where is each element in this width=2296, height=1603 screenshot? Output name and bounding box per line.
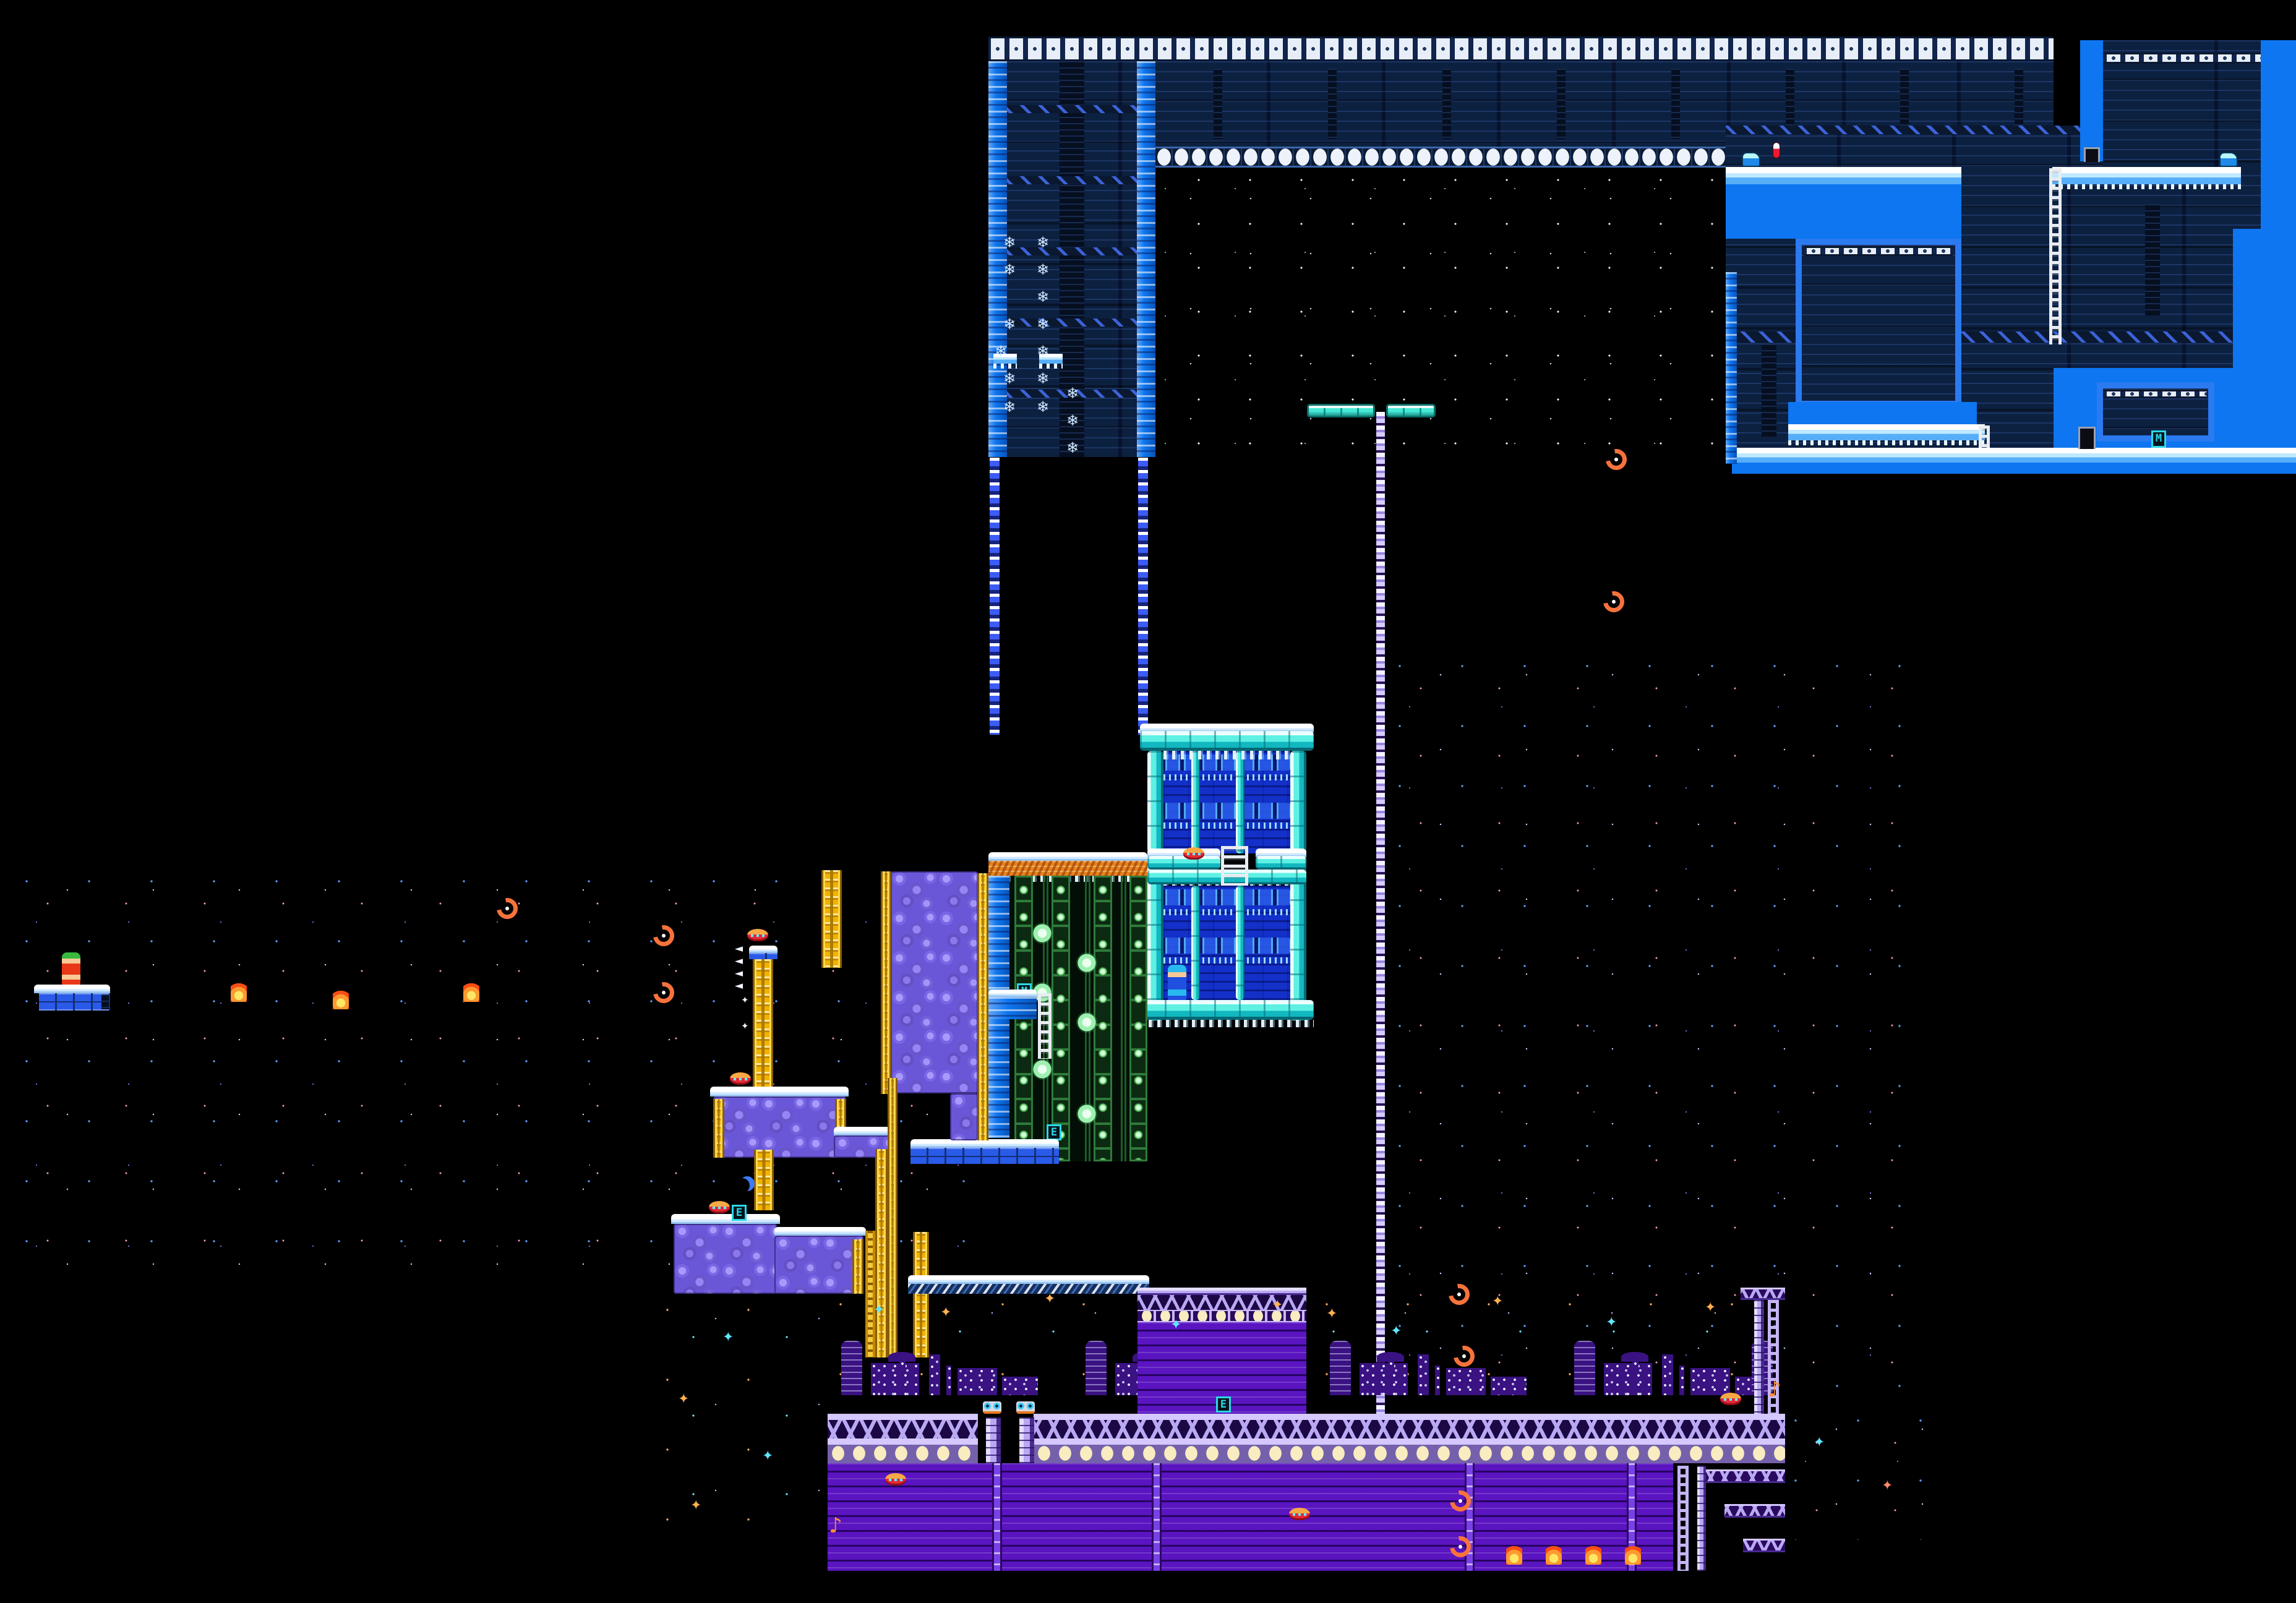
arrow-left-icon: ◄ [735,968,743,979]
upper-rock-platform [713,1096,846,1158]
skyline-stem [899,1361,906,1368]
start-platform [39,993,110,1011]
twinkle-icon: ✦ [762,1450,773,1463]
twinkle-icon: ✦ [1272,1299,1283,1312]
rock-wall-strip [950,1093,978,1140]
twinkle-icon: ✦ [1606,1316,1617,1330]
yellow-girder [835,1099,846,1130]
tower-edge-left [988,61,1007,457]
snowflake-icon: ❄ [1037,371,1049,386]
blue-ledge [910,1148,1059,1164]
arrow-left-icon: ◄ [735,981,743,991]
tower-edge-right [1137,61,1155,457]
fortress-wall-seam [992,1463,1002,1571]
level-map: MMEEE♪♪✦✦◄◄◄◄❄❄❄❄❄❄❄❄❄❄❄❄❄❄❄❄✦✦✦✦✦✦✦✦✦✦✦… [0,0,2296,1603]
twinkle-icon: ✦ [1170,1319,1181,1332]
rock-wall [891,871,978,1093]
right-structure-left-edge [1726,272,1737,464]
enemy-binoculars [1016,1401,1035,1414]
yellow-girder [977,873,988,1140]
fortress-corner-ladder [1677,1466,1689,1571]
starfield-left-of-fortress [656,1296,828,1537]
enemy-saucer [1289,1508,1310,1520]
item-crescent [740,1176,755,1191]
wall-speaker [1014,1525,1028,1546]
snowflake-icon: ❄ [1037,317,1049,331]
ne-shaft [2080,40,2103,161]
snowflake-icon: ❄ [1003,235,1016,250]
upper-ice-floor-right [2052,167,2241,184]
enemy-flame [333,990,349,1009]
yellow-girder [753,959,773,1096]
ice-arm-snow [988,990,1037,997]
gate-teeth [1163,957,1290,964]
dirt-ledge-snow [988,852,1147,861]
gate-mid-right [1256,856,1306,870]
item-capsule-e: E [1216,1396,1231,1413]
enemy-flame [463,982,479,1002]
tower-seam [1002,176,1142,184]
gate-frame-bottom [1140,1000,1314,1020]
wall-speaker [1168,1519,1182,1537]
machine-column [1052,876,1070,1161]
gap-under-room-a [1788,402,1977,425]
machine-ladder [1038,993,1052,1059]
twinkle-icon: ✦ [678,1393,689,1406]
snowflake-icon: ❄ [1037,235,1049,250]
yellow-girder [754,1150,774,1210]
item-sled [2219,152,2238,167]
gate-pipe [1236,751,1244,853]
wall-speaker [999,1525,1013,1546]
skyline-stem [1632,1361,1638,1368]
fortress-top-bar [1741,1288,1785,1300]
fortress-post [986,1417,1001,1463]
fortress-top-rail [1754,1300,1764,1414]
yellow-girder [713,1099,724,1158]
fortress-girder-left [828,1414,978,1463]
bottom-strip [1732,463,2296,474]
snowflake-icon: ❄ [1003,400,1016,414]
character-megaman [1168,965,1186,1000]
twinkle-icon: ✦ [1814,1436,1825,1450]
machine-rail [1124,876,1126,1161]
enemy-flame [1546,1545,1562,1565]
snowflake-icon: ❄ [1003,317,1016,331]
lower-rock-ext-snow [774,1227,866,1236]
snowflake-icon: ❄ [1037,262,1049,277]
lower-rock-platform-snow [671,1214,780,1224]
gate-plates [1163,803,1290,819]
twinkle-icon: ✦ [1044,1293,1055,1306]
skyline-block [1690,1368,1730,1395]
sparkle-icon: ✦ [741,996,749,1005]
fortress-step [1743,1539,1785,1552]
right-structure-ladder-upper [2049,168,2062,344]
skyline-tower [1330,1341,1351,1395]
long-ice-ledge [908,1284,1149,1294]
gate-icicles [1163,751,1290,759]
slab-seam [1328,69,1337,139]
skyline-tower [1086,1341,1107,1395]
gate-frame-right [1290,751,1306,1020]
sparkle-icon: ✦ [741,1022,749,1031]
twinkle-icon: ✦ [1390,1325,1402,1338]
long-chain [1376,412,1385,1415]
ne-shaft-door [2084,147,2100,162]
wall-speaker [1435,1518,1449,1539]
wall-speaker [1168,1500,1182,1519]
right-structure-channel [1762,344,1776,437]
enemy-flame [1506,1545,1522,1565]
ne-right-corridor [2261,40,2296,374]
wall-speaker [1356,1518,1369,1539]
inner-room-b-girder [2104,390,2207,398]
starfield-right-of-fortress [1788,1410,1942,1540]
machine-light [1032,923,1053,944]
snowflake-icon: ❄ [995,344,1007,359]
snowflake-icon: ❄ [1037,289,1049,304]
twinkle-icon: ✦ [1492,1295,1503,1309]
wall-speaker [1168,1482,1182,1500]
music-note-icon: ♪ [1768,1379,1781,1400]
mini-ledge-snow [749,946,777,953]
wall-speaker [1257,1523,1270,1544]
item-capsule-e: E [1047,1124,1061,1140]
skyline-block [871,1363,919,1395]
yellow-girder [821,870,842,968]
twinkle-icon: ✦ [1882,1479,1893,1493]
slab-seam [1442,69,1451,139]
character-roll [62,952,80,985]
wall-speaker [1099,1517,1113,1538]
upper-ice-floor-left [1726,167,1961,184]
snowflake-icon: ❄ [1066,440,1079,455]
arrow-left-icon: ◄ [735,956,743,967]
enemy-binoculars [983,1401,1001,1414]
skyline-stem [1388,1361,1394,1368]
wall-speaker [1030,1517,1043,1538]
top-girder-row [988,36,2054,61]
wall-speaker [1150,1490,1164,1511]
enemy-saucer [730,1072,751,1085]
wall-speaker [1593,1507,1607,1528]
gate-mid-ladder [1221,846,1248,887]
yellow-girder [875,1149,888,1357]
tower-seam [1002,318,1142,327]
item-capsule-e: E [732,1205,747,1221]
wall-speaker [1395,1518,1409,1539]
enemy-saucer [885,1473,906,1485]
gate-teeth [1163,774,1290,780]
yellow-ladder [865,1231,875,1357]
yellow-girder [881,871,891,1094]
twinkle-icon: ✦ [940,1306,951,1320]
skyline-thin-tower [1662,1354,1673,1395]
skyline-block [1604,1363,1652,1395]
gate-frame-top [1140,731,1314,751]
skyline-pole [1679,1366,1684,1395]
gate-pipe [1236,886,1244,1000]
gate-pipe [1191,886,1200,1000]
enemy-flame [231,982,247,1002]
upper-corridor [1726,184,1961,239]
yellow-girder [852,1239,863,1294]
hanging-platform-right [1386,404,1436,417]
skyline-thin-tower [1418,1354,1429,1395]
skyline-block [1360,1363,1408,1395]
slab-seam [1671,69,1680,139]
gate-plates [1163,938,1290,954]
twinkle-icon: ✦ [1326,1307,1337,1321]
twinkle-icon: ✦ [1705,1301,1716,1315]
twinkle-icon: ✦ [722,1331,734,1344]
fortress-block-rail [1137,1288,1306,1295]
item-energy [1773,142,1780,158]
enemy-saucer [709,1201,730,1213]
hanging-blue-chain [990,458,1000,735]
yellow-girder [913,1232,929,1357]
inner-room-a-girder [1804,246,1953,256]
twinkle-icon: ✦ [690,1499,701,1513]
hanging-platform-left [1307,404,1375,417]
item-capsule-m: M [2151,430,2166,448]
right-structure-channel [2145,204,2160,315]
lower-rock-platform [674,1224,777,1294]
fortress-corner-rail [1697,1466,1706,1571]
bottom-ice-floor [1732,448,2296,464]
skyline-tower [841,1341,862,1395]
skyline-block [1491,1377,1527,1395]
mini-ledge [749,953,777,959]
skyline-block [1446,1368,1486,1395]
enemy-saucer [1183,847,1204,860]
fortress-step [1706,1469,1785,1483]
slab-seam [1557,69,1566,139]
mid-ice-floor [1788,424,1985,440]
snowflake-icon: ❄ [1003,371,1016,386]
lower-rock-ext [774,1236,863,1294]
tower-seam [1002,105,1142,113]
start-platform-snow [34,985,110,993]
right-mid-corridor [2233,229,2261,371]
arrow-left-icon: ◄ [735,944,743,954]
snowflake-icon: ❄ [1066,413,1079,428]
inner-room-a [1796,239,1961,407]
ice-arm [988,997,1037,1019]
wall-speaker [1514,1507,1528,1528]
music-note-icon: ♪ [829,1515,842,1536]
enemy-flame [1585,1545,1601,1565]
enemy-flame [1625,1545,1641,1565]
wall-speaker [1554,1507,1567,1528]
snowflake-icon: ❄ [1037,400,1049,414]
hanging-blue-chain [1138,458,1148,735]
fortress-post [1019,1417,1034,1463]
wall-speaker [1168,1463,1182,1482]
skyline-thin-tower [929,1354,940,1395]
fortress-girder-main [1034,1414,1785,1463]
slab-seam [1214,69,1222,139]
bottom-corridor-door [2078,427,2096,449]
enemy-saucer [1720,1393,1741,1405]
snowflake-icon: ❄ [1066,386,1079,401]
upper-rock-ext-snow [834,1127,896,1135]
upper-rock-platform-snow [710,1087,849,1096]
machine-light [1032,1059,1053,1080]
gate-frame-left [1147,751,1163,1020]
skyline-block [1002,1377,1038,1395]
skyline-pole [946,1366,951,1395]
machine-light [1076,952,1097,973]
fortress-step [1724,1504,1785,1518]
twinkle-icon: ✦ [873,1304,885,1317]
wall-speaker [1060,1517,1073,1538]
ne-girder-row [2104,53,2261,64]
skyline-tower [1574,1341,1595,1395]
tower-seam [1002,247,1142,255]
gate-plates [1163,889,1290,905]
long-ice-ledge-snow [908,1275,1149,1284]
yellow-girder [888,1078,897,1357]
wall-speaker [1218,1523,1232,1544]
wall-speaker [1199,1523,1212,1544]
gate-mid-left [1147,856,1220,870]
skyline-pole [1435,1366,1440,1395]
machine-rail [1121,876,1123,1161]
blue-ledge-snow [910,1139,1059,1148]
snowflake-icon: ❄ [1003,262,1016,277]
gate-pipe [1191,751,1200,853]
item-sled [1742,152,1760,167]
start-platform-hatch [101,994,109,1009]
dirt-ledge [988,861,1147,876]
wall-speaker [1240,1517,1253,1538]
wall-speaker [1633,1507,1647,1528]
skyline-block [957,1368,997,1395]
machine-light [1076,1012,1097,1033]
enemy-saucer [747,929,768,941]
machine-light [1076,1103,1097,1124]
machine-column [1129,876,1147,1161]
gate-teeth [1163,909,1290,915]
gate-teeth [1163,823,1290,829]
gate-bottom-icicles [1140,1020,1314,1027]
snowflake-icon: ❄ [1037,344,1049,359]
enemy-spiral [1599,587,1628,616]
